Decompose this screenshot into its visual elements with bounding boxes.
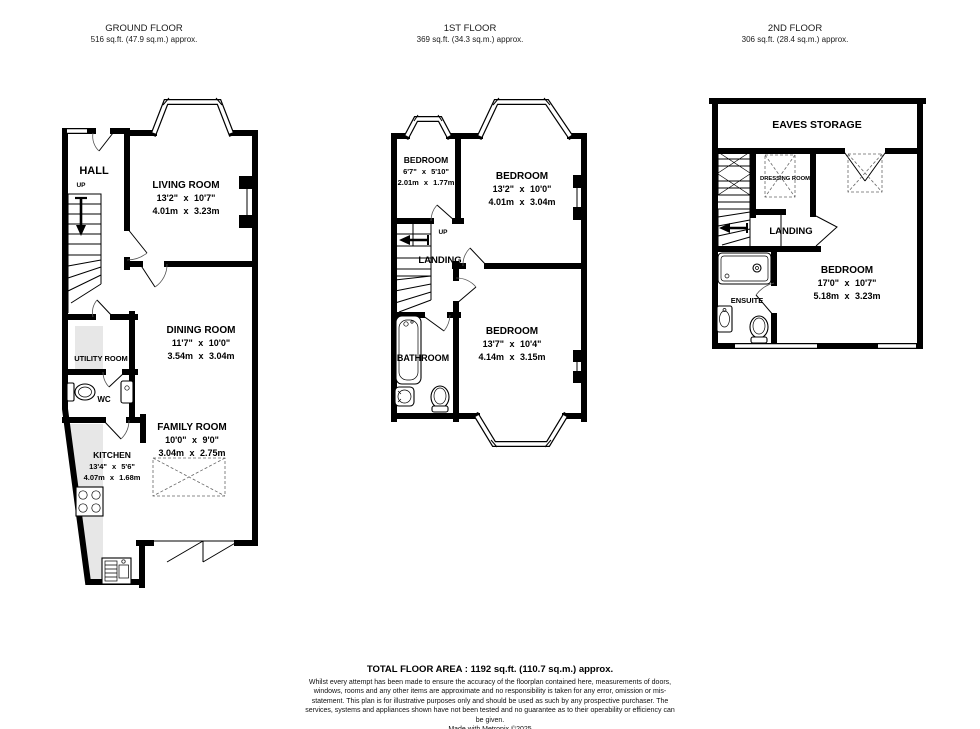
room-label-living-room: LIVING ROOM 13'2" x 10'7" 4.01m x 3.23m bbox=[152, 179, 219, 218]
toilet-icon bbox=[431, 386, 449, 412]
total-floor-area: TOTAL FLOOR AREA : 1192 sq.ft. (110.7 sq… bbox=[0, 664, 980, 675]
kitchen-dims-m: 4.07m x 1.68m bbox=[84, 472, 141, 483]
kitchen-dims-ft: 13'4" x 5'6" bbox=[84, 461, 141, 472]
bedroom-small-dims-m: 2.01m x 1.77m bbox=[398, 177, 455, 188]
living-room-dims-m: 4.01m x 3.23m bbox=[152, 205, 219, 218]
shower-icon bbox=[718, 253, 771, 284]
first-floor-header: 1ST FLOOR 369 sq.ft. (34.3 sq.m.) approx… bbox=[417, 23, 524, 45]
first-floor-drawing bbox=[385, 88, 600, 463]
bedroom-small-name: BEDROOM bbox=[398, 155, 455, 166]
family-room-name: FAMILY ROOM bbox=[157, 421, 226, 434]
rear-bay-window bbox=[477, 416, 565, 447]
footer: TOTAL FLOOR AREA : 1192 sq.ft. (110.7 sq… bbox=[0, 664, 980, 729]
sink-icon bbox=[102, 558, 131, 584]
room-label-bedroom-front: BEDROOM 13'2" x 10'0" 4.01m x 3.04m bbox=[488, 170, 555, 209]
room-label-dressing-room: DRESSING ROOM bbox=[760, 176, 810, 182]
bedroom-rear-dims-m: 4.14m x 3.15m bbox=[478, 351, 545, 364]
small-bay-window bbox=[407, 115, 449, 136]
living-room-name: LIVING ROOM bbox=[152, 179, 219, 192]
bedroom-front-dims-m: 4.01m x 3.04m bbox=[488, 196, 555, 209]
toilet-icon bbox=[67, 383, 95, 401]
second-floor-header: 2ND FLOOR 306 sq.ft. (28.4 sq.m.) approx… bbox=[742, 23, 849, 45]
stairs-up-label-first: UP bbox=[438, 229, 447, 236]
room-label-kitchen: KITCHEN 13'4" x 5'6" 4.07m x 1.68m bbox=[84, 450, 141, 483]
room-label-landing-first: LANDING bbox=[418, 255, 461, 266]
first-floor-area: 369 sq.ft. (34.3 sq.m.) approx. bbox=[417, 34, 524, 45]
room-label-bedroom-second: BEDROOM 17'0" x 10'7" 5.18m x 3.23m bbox=[813, 264, 880, 303]
bedroom-front-dims-ft: 13'2" x 10'0" bbox=[488, 183, 555, 196]
kitchen-name: KITCHEN bbox=[84, 450, 141, 461]
second-floor-title: 2ND FLOOR bbox=[742, 23, 849, 34]
room-label-eaves-storage: EAVES STORAGE bbox=[772, 119, 861, 131]
rooflight-dashed bbox=[153, 458, 225, 496]
room-label-dining-room: DINING ROOM 11'7" x 10'0" 3.54m x 3.04m bbox=[167, 324, 236, 363]
bedroom-second-name: BEDROOM bbox=[813, 264, 880, 277]
basin-icon bbox=[717, 306, 732, 332]
front-bay-window bbox=[480, 98, 570, 136]
family-room-dims-m: 3.04m x 2.75m bbox=[157, 447, 226, 460]
disclaimer-text: Whilst every attempt has been made to en… bbox=[304, 678, 676, 725]
basin-icon bbox=[121, 381, 133, 403]
room-label-hall: HALL bbox=[79, 165, 108, 177]
family-room-dims-ft: 10'0" x 9'0" bbox=[157, 434, 226, 447]
bedroom-second-dims-ft: 17'0" x 10'7" bbox=[813, 277, 880, 290]
ground-floor-title: GROUND FLOOR bbox=[91, 23, 198, 34]
room-label-family-room: FAMILY ROOM 10'0" x 9'0" 3.04m x 2.75m bbox=[157, 421, 226, 460]
basin-icon bbox=[395, 387, 414, 406]
folding-doors bbox=[151, 541, 237, 562]
dormer-skylight bbox=[842, 149, 888, 192]
bedroom-second-dims-m: 5.18m x 3.23m bbox=[813, 290, 880, 303]
dining-room-name: DINING ROOM bbox=[167, 324, 236, 337]
toilet-icon bbox=[750, 316, 768, 343]
room-label-ensuite: ENSUITE bbox=[731, 296, 764, 305]
bath-icon bbox=[396, 316, 421, 384]
dining-room-dims-ft: 11'7" x 10'0" bbox=[167, 337, 236, 350]
second-walls bbox=[712, 101, 923, 346]
bedroom-rear-dims-ft: 13'7" x 10'4" bbox=[478, 338, 545, 351]
room-label-bathroom: BATHROOM bbox=[397, 353, 449, 363]
hob-icon bbox=[76, 487, 103, 516]
staircase-first bbox=[395, 222, 431, 312]
room-label-bedroom-small: BEDROOM 6'7" x 5'10" 2.01m x 1.77m bbox=[398, 155, 455, 188]
second-floor-area: 306 sq.ft. (28.4 sq.m.) approx. bbox=[742, 34, 849, 45]
room-label-utility: UTILITY ROOM bbox=[74, 354, 128, 363]
room-label-wc: WC bbox=[97, 395, 110, 404]
living-room-dims-ft: 13'2" x 10'7" bbox=[152, 192, 219, 205]
first-floor-title: 1ST FLOOR bbox=[417, 23, 524, 34]
room-label-bedroom-rear: BEDROOM 13'7" x 10'4" 4.14m x 3.15m bbox=[478, 325, 545, 364]
bedroom-door bbox=[816, 216, 837, 246]
room-label-landing-second: LANDING bbox=[769, 226, 812, 237]
chimney-breast bbox=[239, 176, 252, 228]
stairs-up-label-ground: UP bbox=[76, 182, 85, 189]
floorplan-page: GROUND FLOOR 516 sq.ft. (47.9 sq.m.) app… bbox=[0, 0, 980, 729]
staircase-ground bbox=[68, 194, 101, 313]
dining-room-dims-m: 3.54m x 3.04m bbox=[167, 350, 236, 363]
bedroom-small-dims-ft: 6'7" x 5'10" bbox=[398, 166, 455, 177]
bedroom-front-name: BEDROOM bbox=[488, 170, 555, 183]
ground-floor-header: GROUND FLOOR 516 sq.ft. (47.9 sq.m.) app… bbox=[91, 23, 198, 45]
ground-floor-area: 516 sq.ft. (47.9 sq.m.) approx. bbox=[91, 34, 198, 45]
living-room-bay-window bbox=[154, 98, 231, 133]
bedroom-rear-name: BEDROOM bbox=[478, 325, 545, 338]
